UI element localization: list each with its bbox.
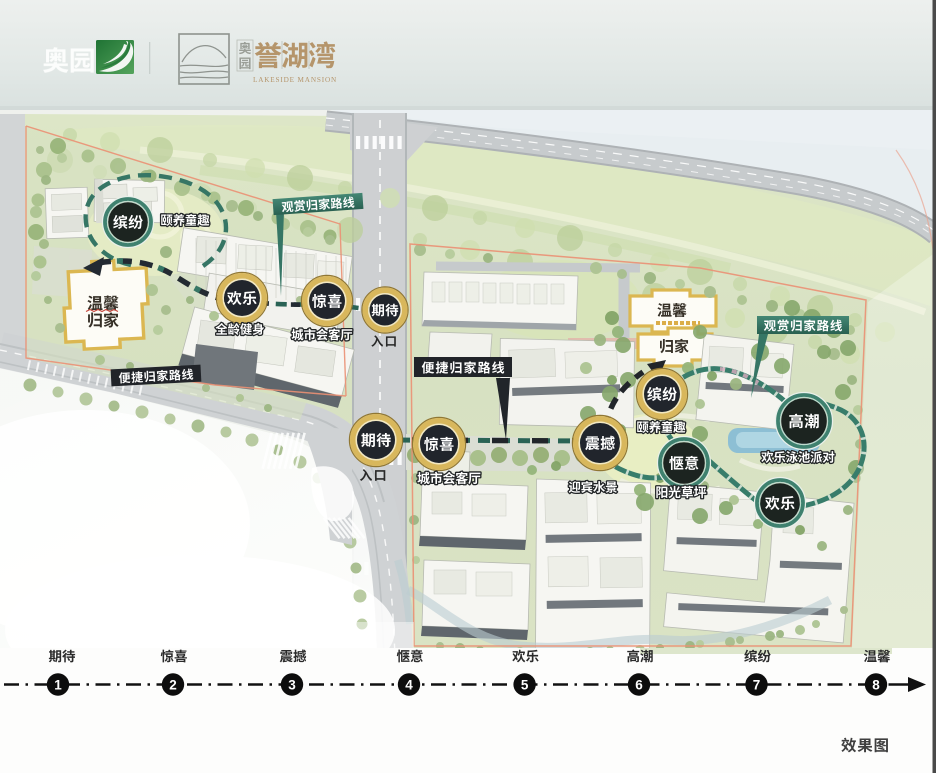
svg-text:1: 1	[54, 678, 62, 693]
svg-text:4: 4	[405, 678, 413, 693]
svg-text:5: 5	[521, 678, 529, 693]
svg-text:6: 6	[635, 678, 643, 693]
svg-text:2: 2	[169, 678, 177, 693]
svg-text:7: 7	[753, 678, 761, 693]
svg-text:8: 8	[872, 678, 880, 693]
svg-text:3: 3	[288, 678, 296, 693]
svg-text:LAKESIDE MANSION: LAKESIDE MANSION	[253, 76, 337, 84]
